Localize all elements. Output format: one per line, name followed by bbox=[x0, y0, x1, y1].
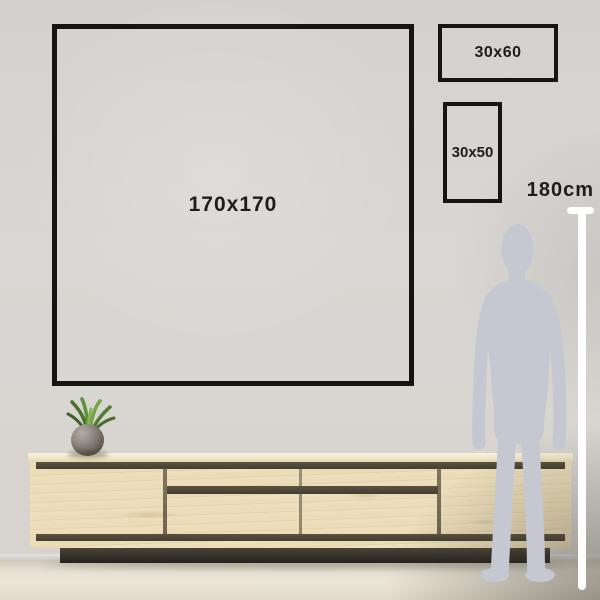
measure-line bbox=[578, 209, 586, 590]
frame-size-30x50: 30x50 bbox=[443, 102, 502, 203]
frame-size-30x60: 30x60 bbox=[438, 24, 558, 82]
frame-size-170x170-label: 170x170 bbox=[189, 193, 278, 217]
sideboard-seam bbox=[437, 468, 441, 534]
plant-pot-shadow bbox=[68, 451, 108, 458]
sideboard-seam bbox=[163, 468, 167, 534]
sideboard-seam bbox=[299, 469, 302, 534]
size-guide-scene: 170x170 30x60 30x50 180cm bbox=[0, 0, 600, 600]
frame-size-30x60-label: 30x60 bbox=[475, 44, 522, 62]
sideboard-drawer-slot bbox=[167, 486, 438, 494]
person-silhouette-icon bbox=[470, 222, 570, 584]
frame-size-30x50-label: 30x50 bbox=[452, 144, 494, 161]
height-label: 180cm bbox=[504, 179, 594, 202]
frame-size-170x170: 170x170 bbox=[52, 24, 414, 386]
